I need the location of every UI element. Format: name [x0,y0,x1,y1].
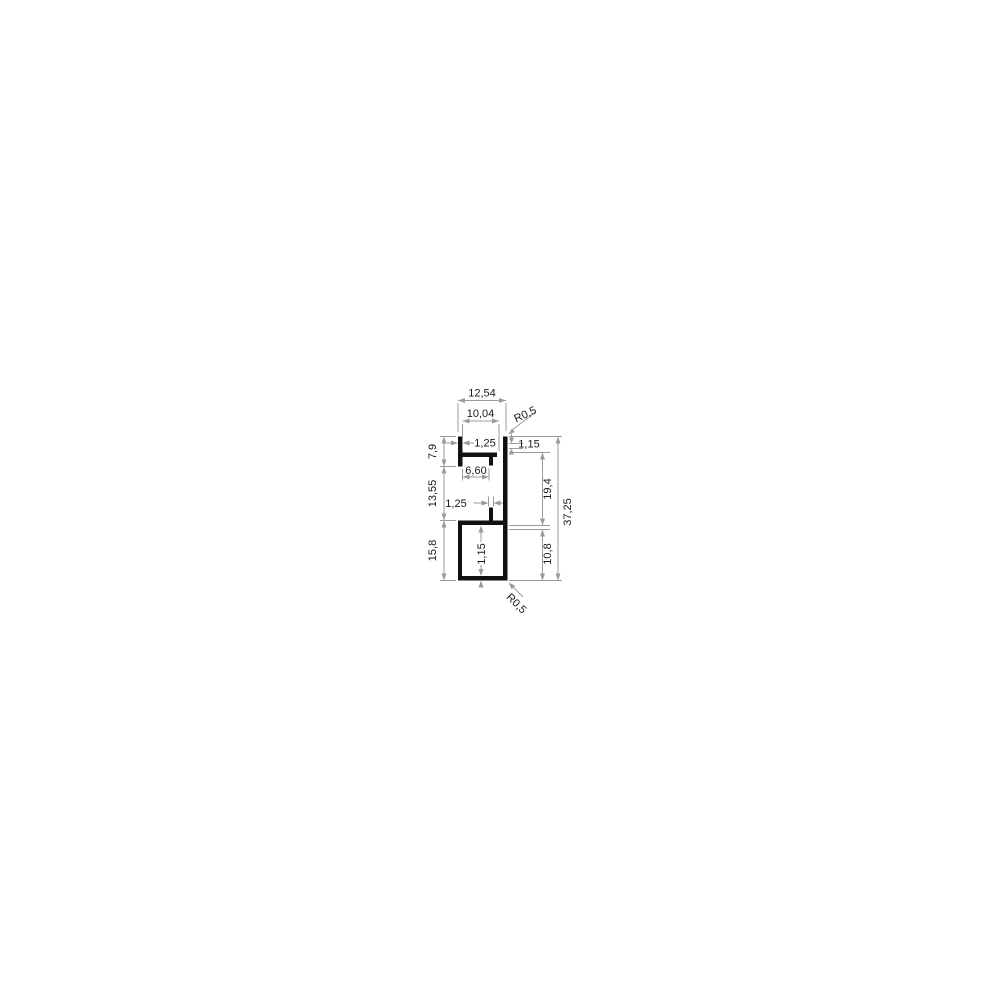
dim-label-tab-thickness: 1,25 [474,438,495,450]
dimension-tab-thickness: 1,25 [447,438,496,450]
dim-label-slot-opening: 6,60 [465,465,486,477]
profile-main-wall [503,437,508,581]
dim-label-wall-thickness: 1,15 [476,543,488,564]
arrowhead [499,398,506,403]
dimension-radius-bottom: R0,5 [504,583,529,617]
arrowhead [540,530,545,537]
arrowhead [442,460,447,467]
dim-label-radius-bottom: R0,5 [504,591,529,616]
arrowhead [509,438,514,444]
arrowhead [442,521,447,528]
arrowhead [451,441,458,446]
dimension-height-upper-right: 19,4 [509,453,554,526]
arrowhead [494,501,501,506]
dimension-height-middle-left: 13,55 [427,467,456,521]
dimension-height-bottom-left: 15,8 [427,521,456,581]
dim-label-height-middle-left: 13,55 [427,480,439,508]
arrowhead [479,526,484,533]
dim-label-height-lower-right: 10,8 [542,543,554,564]
dimension-flange-thickness: 1,15 [509,434,540,455]
dimension-radius-top: R0,5 [508,405,538,435]
dim-label-flange-thickness: 1,15 [518,439,539,451]
profile-mid-stub [489,508,493,521]
dim-label-height-top-left: 7,9 [427,444,439,459]
profile-top-flange [458,453,497,458]
drawing-canvas: 12,54 10,04 R0,5 1,25 [0,0,1000,1000]
arrowhead [458,398,465,403]
arrowhead [556,574,561,581]
arrowhead [556,437,561,444]
profile-bottom-bar [458,576,508,581]
arrowhead [540,574,545,581]
profile-top-tab [458,437,463,467]
dim-label-overall-width: 12,54 [468,388,496,400]
arrowhead [442,437,447,444]
dim-label-height-bottom-left: 15,8 [427,540,439,561]
dim-label-overall-height: 37,25 [562,498,574,526]
arrowhead [508,429,515,435]
dimension-slot-opening: 6,60 [463,465,490,481]
dim-label-flange-width: 10,04 [467,408,495,420]
dimension-stub-width: 1,25 [445,497,503,511]
dimension-height-lower-right: 10,8 [509,530,554,581]
profile-top-stub [489,457,493,466]
arrowhead [482,501,489,506]
arrowhead [442,574,447,581]
profile-left-wall [458,521,462,581]
arrowhead [442,514,447,521]
arrowhead [479,581,484,588]
dim-label-height-upper-right: 19,4 [542,478,554,499]
dim-label-stub-width: 1,25 [445,498,466,510]
arrowhead [540,519,545,526]
dim-label-radius-top: R0,5 [512,405,538,426]
profile-technical-drawing: 12,54 10,04 R0,5 1,25 [0,0,1000,1000]
profile-mid-bar [458,521,508,526]
arrowhead [509,449,514,455]
arrowhead [540,453,545,460]
arrowhead [442,467,447,474]
arrowhead [479,569,484,576]
arrowhead [463,441,470,446]
